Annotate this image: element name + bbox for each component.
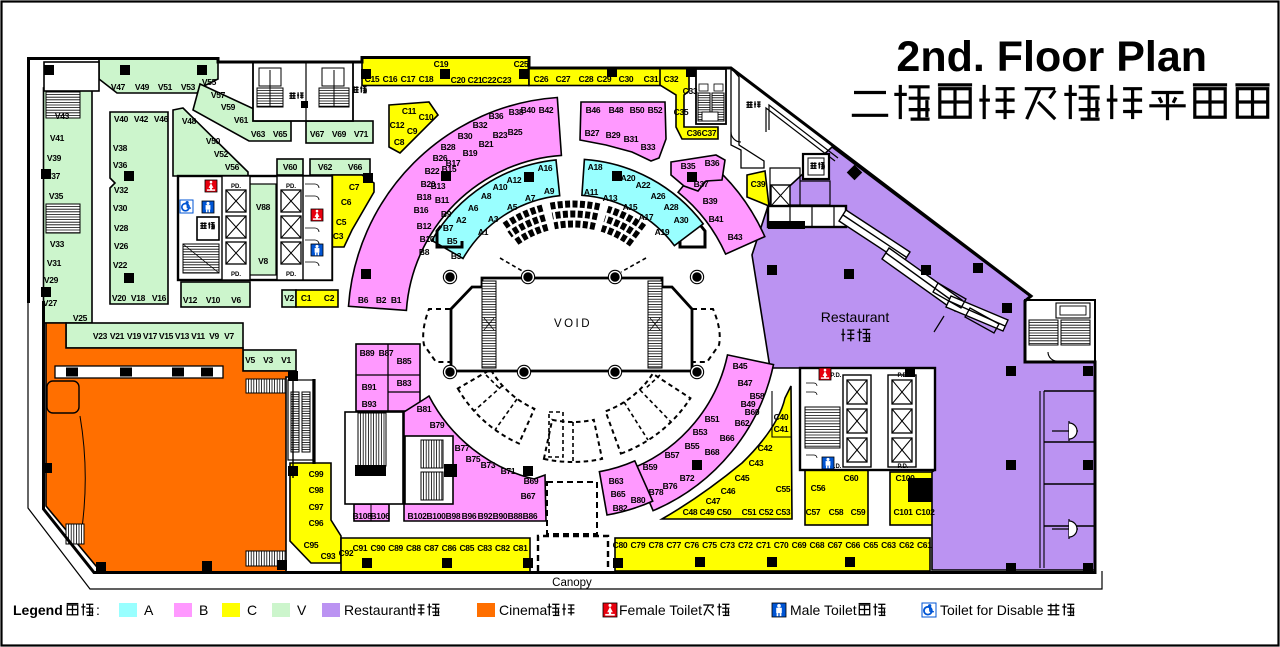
svg-text:C55: C55 <box>776 484 791 494</box>
svg-text:V51: V51 <box>158 82 173 92</box>
svg-text:C21: C21 <box>468 75 483 85</box>
svg-text:B100: B100 <box>426 511 446 521</box>
svg-text:C15: C15 <box>365 74 380 84</box>
svg-text:V60: V60 <box>283 162 298 172</box>
svg-text:B65: B65 <box>611 489 626 499</box>
svg-text:V43: V43 <box>55 111 70 121</box>
svg-text:B86: B86 <box>523 511 538 521</box>
svg-text:V65: V65 <box>273 129 288 139</box>
svg-text:V31: V31 <box>47 258 62 268</box>
svg-text:PD.: PD. <box>286 184 296 190</box>
svg-text:V16: V16 <box>152 293 167 303</box>
svg-text:C30: C30 <box>619 74 634 84</box>
svg-text:C16: C16 <box>383 74 398 84</box>
svg-text:B6: B6 <box>358 295 369 305</box>
svg-text:A30: A30 <box>674 215 689 225</box>
svg-text:B42: B42 <box>539 105 554 115</box>
svg-text:B2: B2 <box>376 295 387 305</box>
svg-text:C59: C59 <box>851 507 866 517</box>
svg-text:B71: B71 <box>501 466 516 476</box>
svg-text:B66: B66 <box>720 433 735 443</box>
svg-text:V62: V62 <box>318 162 333 172</box>
svg-text:V46: V46 <box>154 114 169 124</box>
svg-text:B27: B27 <box>585 128 600 138</box>
svg-text:B55: B55 <box>685 441 700 451</box>
svg-text:A26: A26 <box>651 191 666 201</box>
svg-text:C58: C58 <box>829 507 844 517</box>
svg-text:C50: C50 <box>717 507 732 517</box>
svg-text:B28: B28 <box>441 142 456 152</box>
svg-text:V57: V57 <box>211 90 226 100</box>
svg-text:C85: C85 <box>459 543 474 553</box>
svg-text:B15: B15 <box>442 164 457 174</box>
svg-text:C2: C2 <box>324 293 335 303</box>
svg-text:B77: B77 <box>455 443 470 453</box>
svg-text:C25: C25 <box>514 59 529 69</box>
svg-text:B53: B53 <box>693 427 708 437</box>
svg-text:C20: C20 <box>451 75 466 85</box>
svg-text:B67: B67 <box>521 491 536 501</box>
svg-text:C69: C69 <box>792 540 807 550</box>
svg-text:B23: B23 <box>493 130 508 140</box>
svg-text:V67: V67 <box>310 129 325 139</box>
svg-text:V37: V37 <box>46 171 61 181</box>
svg-text:C33: C33 <box>683 86 698 96</box>
svg-text:B16: B16 <box>414 205 429 215</box>
svg-text:A28: A28 <box>664 202 679 212</box>
svg-text:C93: C93 <box>321 551 336 561</box>
svg-text:B35: B35 <box>681 161 696 171</box>
svg-text:B92: B92 <box>478 511 493 521</box>
svg-text:V12: V12 <box>183 295 198 305</box>
svg-text:C10: C10 <box>419 112 434 122</box>
svg-text:C96: C96 <box>309 518 324 528</box>
svg-text:C9: C9 <box>407 126 418 136</box>
svg-text:V53: V53 <box>181 82 196 92</box>
svg-text:V8: V8 <box>258 256 268 266</box>
svg-text:B18: B18 <box>417 192 432 202</box>
svg-text:B57: B57 <box>665 450 680 460</box>
svg-text:B37: B37 <box>694 179 709 189</box>
svg-text:B90: B90 <box>493 511 508 521</box>
svg-text:V38: V38 <box>113 143 128 153</box>
svg-text:A3: A3 <box>488 214 499 224</box>
svg-text:B1: B1 <box>391 295 402 305</box>
svg-text:B73: B73 <box>481 460 496 470</box>
svg-text:A: A <box>144 602 154 618</box>
svg-text:Legend: Legend <box>13 602 63 618</box>
svg-text:C76: C76 <box>684 540 699 550</box>
svg-text:C39: C39 <box>751 179 766 189</box>
svg-text:C81: C81 <box>513 543 528 553</box>
svg-text:C5: C5 <box>336 217 347 227</box>
svg-text:V11: V11 <box>191 331 205 341</box>
svg-text:C67: C67 <box>827 540 842 550</box>
svg-text:B29: B29 <box>606 130 621 140</box>
svg-text:B63: B63 <box>609 476 624 486</box>
svg-text:C82: C82 <box>495 543 510 553</box>
svg-text:B89: B89 <box>360 348 375 358</box>
svg-text:C43: C43 <box>749 458 764 468</box>
svg-text:A11: A11 <box>584 187 599 197</box>
svg-text:C47: C47 <box>706 496 721 506</box>
svg-text:B19: B19 <box>463 148 478 158</box>
svg-text:2nd. Floor Plan: 2nd. Floor Plan <box>896 33 1207 81</box>
svg-text:B98: B98 <box>446 511 461 521</box>
svg-text:C53: C53 <box>776 507 791 517</box>
svg-text:A12: A12 <box>507 175 522 185</box>
svg-text:B21: B21 <box>479 139 494 149</box>
svg-text:C8: C8 <box>394 137 405 147</box>
svg-text:C72: C72 <box>738 540 753 550</box>
svg-text:C41: C41 <box>774 424 789 434</box>
svg-text:P.D.: P.D. <box>898 464 909 470</box>
svg-text:PD.: PD. <box>231 272 241 278</box>
svg-text:C: C <box>247 602 257 618</box>
svg-text:V18: V18 <box>131 293 146 303</box>
svg-text:C91: C91 <box>353 543 368 553</box>
svg-text:Restaurant: Restaurant <box>344 602 413 618</box>
svg-text:V33: V33 <box>50 239 65 249</box>
svg-text:C42: C42 <box>758 443 773 453</box>
svg-text:V88: V88 <box>256 202 271 212</box>
svg-text:B36: B36 <box>705 158 720 168</box>
svg-text:C71: C71 <box>756 540 771 550</box>
svg-text:C56: C56 <box>811 483 826 493</box>
svg-text:C92: C92 <box>339 548 354 558</box>
svg-text:B11: B11 <box>435 195 450 205</box>
svg-text:B12: B12 <box>417 221 432 231</box>
svg-text:B31: B31 <box>624 134 639 144</box>
svg-text:C6: C6 <box>341 197 352 207</box>
svg-text:C99: C99 <box>309 469 324 479</box>
svg-text:B7: B7 <box>443 223 454 233</box>
svg-text:V19: V19 <box>127 331 142 341</box>
svg-text:V5: V5 <box>245 355 255 365</box>
svg-text:C7: C7 <box>349 182 360 192</box>
svg-text:C35: C35 <box>674 107 689 117</box>
svg-text:B: B <box>199 602 208 618</box>
svg-text:C101: C101 <box>893 507 913 517</box>
svg-text:B68: B68 <box>705 447 720 457</box>
svg-text:B96: B96 <box>462 511 477 521</box>
svg-text:B10: B10 <box>420 234 435 244</box>
svg-text:A10: A10 <box>493 182 508 192</box>
svg-text:V48: V48 <box>182 116 197 126</box>
svg-text:V9: V9 <box>209 331 219 341</box>
svg-text:A17: A17 <box>639 212 654 222</box>
svg-text:C27: C27 <box>556 74 571 84</box>
svg-text:B47: B47 <box>738 378 753 388</box>
svg-text:B81: B81 <box>417 404 432 414</box>
svg-text:PD.: PD. <box>286 272 296 278</box>
svg-text:V69: V69 <box>332 129 347 139</box>
svg-text:V39: V39 <box>47 153 62 163</box>
svg-text:A9: A9 <box>544 186 555 196</box>
svg-text:C28: C28 <box>579 74 594 84</box>
svg-text:C51: C51 <box>742 507 757 517</box>
svg-text:V15: V15 <box>159 331 174 341</box>
svg-text:B76: B76 <box>663 481 678 491</box>
svg-text:A2: A2 <box>456 215 467 225</box>
svg-text:B30: B30 <box>458 131 473 141</box>
svg-text:B45: B45 <box>733 361 748 371</box>
svg-text:A13: A13 <box>603 193 618 203</box>
svg-text:C79: C79 <box>631 540 646 550</box>
svg-text:C18: C18 <box>419 74 434 84</box>
svg-text:C88: C88 <box>406 543 421 553</box>
svg-text:C75: C75 <box>702 540 717 550</box>
svg-text:C32: C32 <box>664 74 679 84</box>
svg-text:V71: V71 <box>354 129 369 139</box>
svg-text:C23: C23 <box>497 75 512 85</box>
svg-text:V47: V47 <box>111 82 126 92</box>
svg-text:B43: B43 <box>728 232 743 242</box>
svg-text:V6: V6 <box>231 295 241 305</box>
svg-text:C89: C89 <box>388 543 403 553</box>
svg-text:A1: A1 <box>478 227 489 237</box>
svg-text:C66: C66 <box>845 540 860 550</box>
svg-text:C83: C83 <box>477 543 492 553</box>
svg-text:B50: B50 <box>630 105 645 115</box>
svg-text:B52: B52 <box>648 105 663 115</box>
svg-text:C60: C60 <box>844 473 859 483</box>
svg-text:C65: C65 <box>863 540 878 550</box>
svg-text:V50: V50 <box>206 136 221 146</box>
svg-text:V7: V7 <box>224 331 234 341</box>
svg-text:V52: V52 <box>214 149 229 159</box>
svg-text:B88: B88 <box>508 511 523 521</box>
svg-text:Female Toilet: Female Toilet <box>619 602 702 618</box>
svg-text:B59: B59 <box>643 462 658 472</box>
svg-text:V36: V36 <box>113 160 128 170</box>
svg-text:V21: V21 <box>110 331 125 341</box>
svg-text:V32: V32 <box>114 185 129 195</box>
svg-text:B5: B5 <box>447 236 458 246</box>
svg-text:C63: C63 <box>881 540 896 550</box>
svg-text:C48: C48 <box>683 507 698 517</box>
svg-text:C17: C17 <box>401 74 416 84</box>
svg-text:C26: C26 <box>534 74 549 84</box>
svg-text:C52: C52 <box>759 507 774 517</box>
svg-text:C12: C12 <box>390 120 405 130</box>
svg-text:Canopy: Canopy <box>552 577 592 589</box>
svg-text:C100: C100 <box>895 473 915 483</box>
svg-text:B83: B83 <box>397 378 412 388</box>
svg-text:A5: A5 <box>507 202 518 212</box>
svg-text:B102: B102 <box>407 511 427 521</box>
svg-text:V66: V66 <box>348 162 363 172</box>
svg-text:V40: V40 <box>114 114 129 124</box>
svg-text:C46: C46 <box>721 486 736 496</box>
svg-text:B108: B108 <box>352 511 372 521</box>
svg-text:B36: B36 <box>489 111 504 121</box>
svg-text:C98: C98 <box>309 485 324 495</box>
svg-text:C11: C11 <box>402 106 417 116</box>
svg-text:B91: B91 <box>362 382 377 392</box>
svg-text:C1: C1 <box>301 293 312 303</box>
svg-text:Toilet for Disable: Toilet for Disable <box>940 602 1044 618</box>
svg-text:V13: V13 <box>175 331 190 341</box>
svg-text:C40: C40 <box>774 412 789 422</box>
svg-text:V: V <box>297 602 307 618</box>
svg-text:B48: B48 <box>609 105 624 115</box>
svg-text:B46: B46 <box>586 105 601 115</box>
svg-text:V35: V35 <box>49 191 64 201</box>
svg-text:B9: B9 <box>441 209 452 219</box>
svg-text:C45: C45 <box>735 473 750 483</box>
svg-text:VOID: VOID <box>554 318 592 330</box>
svg-text:A18: A18 <box>588 162 603 172</box>
svg-text:C37: C37 <box>702 128 717 138</box>
svg-text:A8: A8 <box>481 191 492 201</box>
svg-text:V2: V2 <box>284 293 294 303</box>
svg-text:A6: A6 <box>468 203 479 213</box>
svg-text:B93: B93 <box>362 399 377 409</box>
svg-text:C97: C97 <box>309 502 324 512</box>
svg-text:A22: A22 <box>636 180 651 190</box>
svg-text:C90: C90 <box>370 543 385 553</box>
svg-text:B51: B51 <box>705 414 720 424</box>
svg-text:V28: V28 <box>114 223 129 233</box>
svg-text:A15: A15 <box>623 202 638 212</box>
svg-text:V22: V22 <box>113 260 128 270</box>
svg-text:V29: V29 <box>44 275 59 285</box>
svg-text:C19: C19 <box>434 59 449 69</box>
svg-text:B87: B87 <box>379 348 394 358</box>
svg-text:V61: V61 <box>234 115 249 125</box>
svg-text:V17: V17 <box>143 331 158 341</box>
svg-text:B39: B39 <box>703 196 718 206</box>
svg-text:V10: V10 <box>206 295 221 305</box>
svg-text:C57: C57 <box>806 507 821 517</box>
svg-text:V42: V42 <box>134 114 149 124</box>
svg-text:C77: C77 <box>666 540 681 550</box>
svg-text:Restaurant: Restaurant <box>821 309 890 325</box>
svg-text:B40: B40 <box>521 105 536 115</box>
svg-text:C36: C36 <box>687 128 702 138</box>
svg-text:B72: B72 <box>680 473 695 483</box>
svg-text:B3: B3 <box>451 251 462 261</box>
svg-text:C87: C87 <box>424 543 439 553</box>
svg-text:C31: C31 <box>644 74 659 84</box>
svg-text:V20: V20 <box>112 293 127 303</box>
svg-text:C70: C70 <box>774 540 789 550</box>
svg-text:C49: C49 <box>700 507 715 517</box>
svg-text:B62: B62 <box>735 418 750 428</box>
svg-text:C61: C61 <box>917 540 932 550</box>
svg-text:C102: C102 <box>915 507 935 517</box>
svg-text:V23: V23 <box>93 331 108 341</box>
svg-text:C80: C80 <box>613 540 628 550</box>
svg-text:B69: B69 <box>524 476 539 486</box>
svg-text:V25: V25 <box>73 313 88 323</box>
svg-text:B82: B82 <box>613 503 628 513</box>
svg-text:B78: B78 <box>649 487 664 497</box>
svg-text:V30: V30 <box>113 203 128 213</box>
svg-text::: : <box>96 602 100 618</box>
svg-text:C78: C78 <box>648 540 663 550</box>
svg-text:V41: V41 <box>50 133 65 143</box>
svg-text:B80: B80 <box>631 495 646 505</box>
svg-text:V55: V55 <box>202 77 217 87</box>
svg-text:V3: V3 <box>263 355 273 365</box>
svg-text:A7: A7 <box>525 193 536 203</box>
svg-text:B8: B8 <box>419 247 430 257</box>
svg-text:V26: V26 <box>114 241 129 251</box>
svg-text:B33: B33 <box>641 142 656 152</box>
svg-text:B85: B85 <box>397 356 412 366</box>
svg-text:C73: C73 <box>720 540 735 550</box>
svg-text:V49: V49 <box>135 82 150 92</box>
svg-text:C29: C29 <box>597 74 612 84</box>
svg-text:B13: B13 <box>431 181 446 191</box>
svg-text:C3: C3 <box>333 231 344 241</box>
svg-text:B41: B41 <box>709 214 724 224</box>
svg-text:V1: V1 <box>281 355 291 365</box>
svg-text:P.D.: P.D. <box>831 373 842 379</box>
svg-text:B106: B106 <box>370 511 390 521</box>
svg-text:B75: B75 <box>466 454 481 464</box>
svg-text:V27: V27 <box>43 298 58 308</box>
svg-text:PD.: PD. <box>231 184 241 190</box>
svg-text:C95: C95 <box>304 540 319 550</box>
svg-text:B22: B22 <box>425 166 440 176</box>
svg-text:A16: A16 <box>538 163 553 173</box>
svg-text:V56: V56 <box>225 162 240 172</box>
svg-text:B32: B32 <box>473 120 488 130</box>
svg-text:B25: B25 <box>508 127 523 137</box>
svg-text:C22: C22 <box>482 75 497 85</box>
svg-text:Cinema: Cinema <box>499 602 547 618</box>
svg-text:B60: B60 <box>745 407 760 417</box>
svg-text:A19: A19 <box>655 227 670 237</box>
svg-text:B79: B79 <box>430 420 445 430</box>
svg-text:V59: V59 <box>221 102 236 112</box>
svg-text:C68: C68 <box>810 540 825 550</box>
svg-text:A20: A20 <box>621 173 636 183</box>
svg-text:C62: C62 <box>899 540 914 550</box>
svg-text:C86: C86 <box>442 543 457 553</box>
svg-text:V63: V63 <box>251 129 266 139</box>
svg-text:Male Toilet: Male Toilet <box>790 602 857 618</box>
